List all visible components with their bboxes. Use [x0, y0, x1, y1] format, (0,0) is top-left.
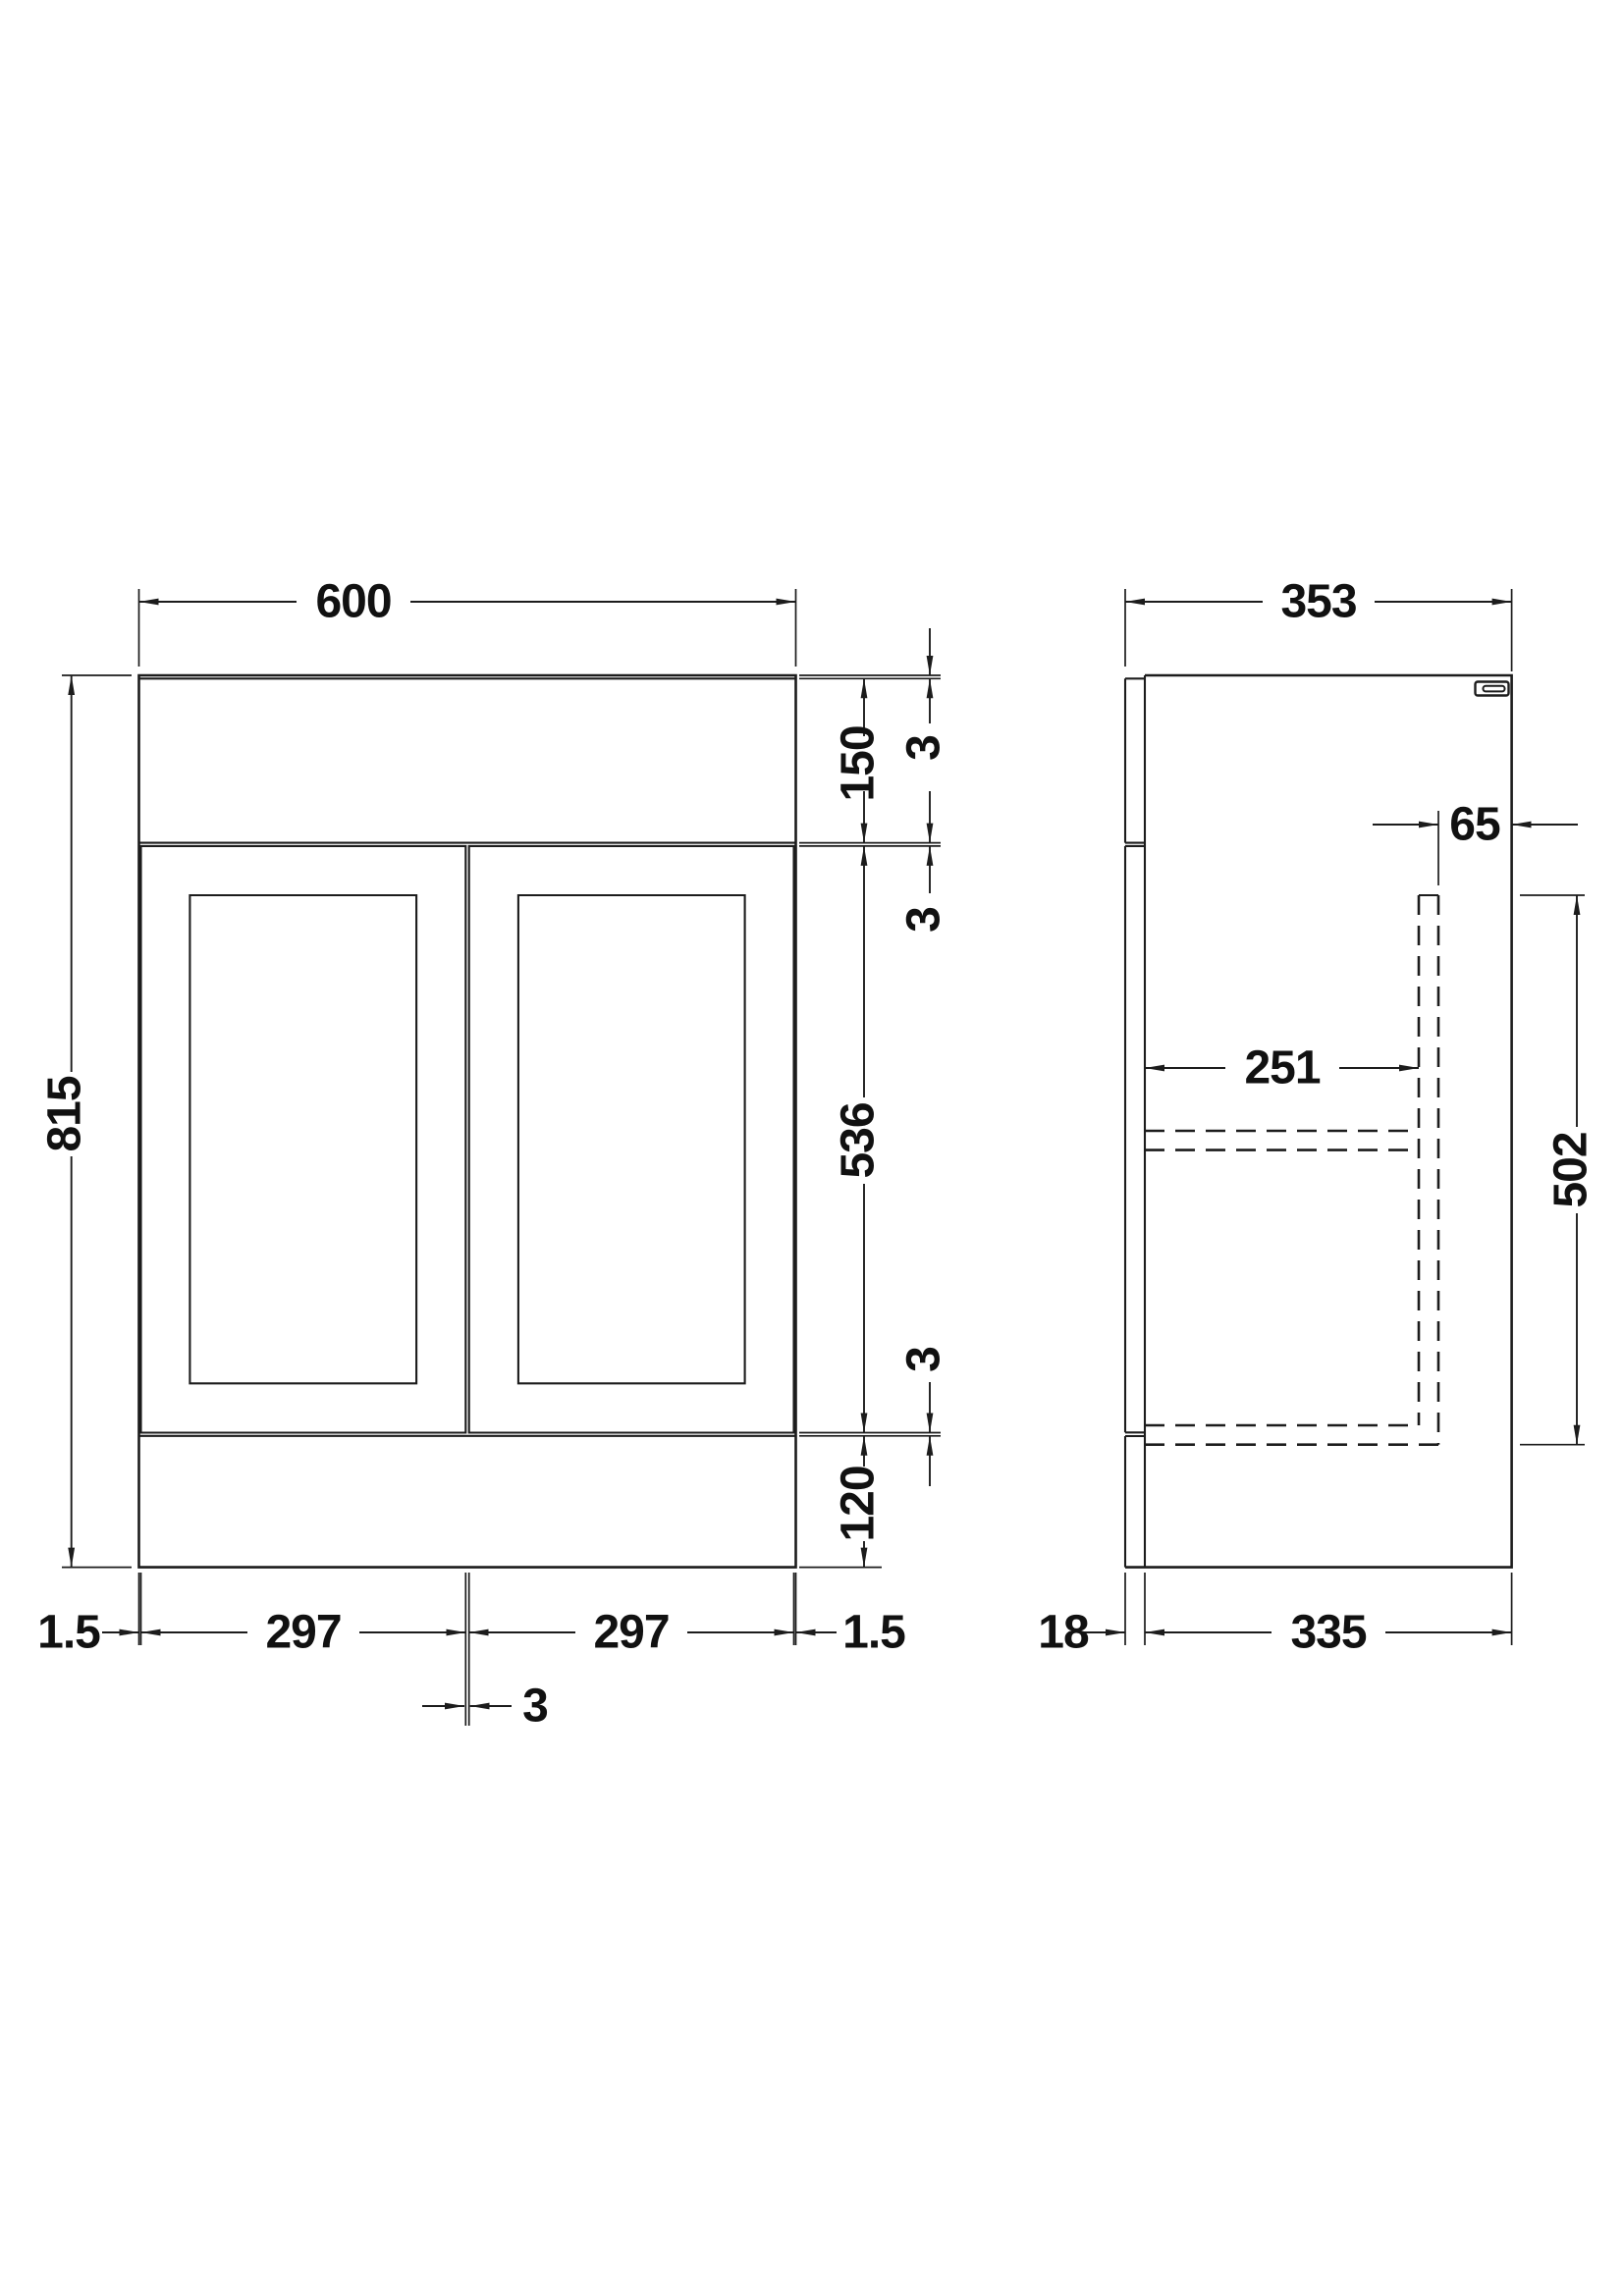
side-front-panel-joints	[1125, 843, 1145, 1436]
dim-left-door-width: 297	[265, 1607, 341, 1659]
dimension-labels: 600 815 3 150 3 536 3 120 1.5 297 297 1.…	[37, 576, 1596, 1733]
dim-worktop-edge: 3	[898, 735, 950, 761]
front-left-door-panel	[189, 895, 416, 1383]
hidden-internal-lines	[1145, 895, 1438, 1445]
front-view	[139, 675, 796, 1568]
extension-lines	[62, 589, 1585, 1726]
technical-drawing: 600 815 3 150 3 536 3 120 1.5 297 297 1.…	[0, 0, 1623, 2296]
dim-front-height: 815	[39, 1076, 91, 1151]
dim-door-bottom-gap: 3	[898, 1347, 950, 1372]
dim-right-reveal: 1.5	[842, 1607, 905, 1659]
dim-right-door-width: 297	[593, 1607, 669, 1659]
front-right-door-panel	[518, 895, 745, 1383]
dim-front-width: 600	[315, 576, 391, 628]
dim-carcass-depth: 335	[1290, 1607, 1366, 1659]
dim-left-reveal: 1.5	[37, 1607, 100, 1659]
dim-door-top-gap: 3	[898, 907, 950, 933]
wall-bracket-icon	[1476, 682, 1509, 696]
dim-plinth-height: 120	[833, 1466, 885, 1541]
drawing-canvas: 600 815 3 150 3 536 3 120 1.5 297 297 1.…	[0, 0, 1623, 2296]
dim-back-recess: 65	[1449, 799, 1500, 851]
dim-duct-height: 502	[1545, 1132, 1597, 1207]
dim-side-depth: 353	[1280, 576, 1356, 628]
dim-top-band: 150	[833, 725, 885, 801]
dim-door-height: 536	[833, 1102, 885, 1178]
dimension-lines	[72, 602, 1578, 1706]
dim-front-panel-thickness: 18	[1038, 1607, 1089, 1659]
dim-door-gap: 3	[522, 1681, 548, 1733]
dim-internal-depth: 251	[1244, 1042, 1320, 1095]
